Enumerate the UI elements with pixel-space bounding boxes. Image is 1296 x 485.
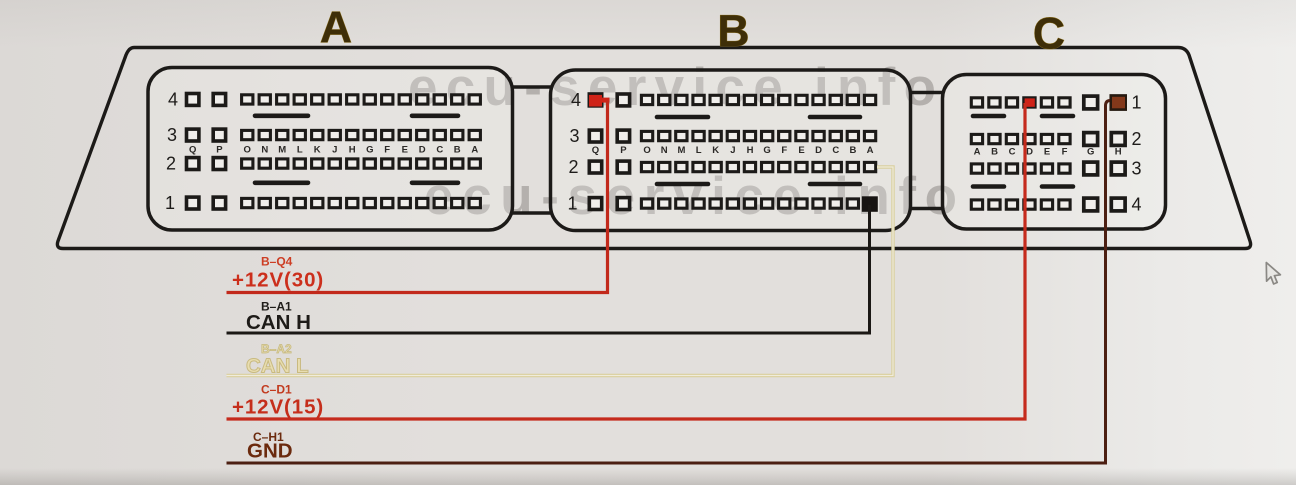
svg-text:B: B bbox=[849, 145, 856, 156]
svg-text:E: E bbox=[798, 145, 804, 156]
svg-text:B: B bbox=[991, 147, 998, 158]
svg-text:H: H bbox=[747, 145, 754, 156]
svg-text:C: C bbox=[1009, 147, 1016, 158]
svg-text:E: E bbox=[402, 145, 408, 156]
svg-text:J: J bbox=[332, 145, 337, 156]
svg-text:4: 4 bbox=[1131, 195, 1141, 215]
svg-text:N: N bbox=[661, 145, 668, 156]
svg-text:+12V(30): +12V(30) bbox=[232, 269, 324, 292]
svg-text:1: 1 bbox=[1131, 93, 1141, 113]
svg-text:3: 3 bbox=[167, 125, 177, 145]
svg-text:G: G bbox=[763, 145, 770, 156]
svg-text:+12V(15): +12V(15) bbox=[232, 396, 324, 419]
svg-text:L: L bbox=[297, 145, 303, 156]
svg-text:H: H bbox=[349, 145, 356, 156]
svg-text:GND: GND bbox=[247, 440, 293, 463]
svg-text:C: C bbox=[832, 145, 839, 156]
svg-text:H: H bbox=[1115, 147, 1122, 158]
svg-text:P: P bbox=[620, 145, 627, 156]
svg-text:M: M bbox=[278, 145, 286, 156]
svg-text:A: A bbox=[471, 145, 478, 156]
svg-text:1: 1 bbox=[567, 194, 577, 214]
svg-text:4: 4 bbox=[571, 90, 581, 110]
svg-text:B–Q4: B–Q4 bbox=[261, 255, 293, 269]
svg-text:C–D1: C–D1 bbox=[261, 383, 292, 397]
svg-text:F: F bbox=[781, 145, 787, 156]
svg-text:3: 3 bbox=[569, 126, 579, 146]
svg-text:Q: Q bbox=[189, 145, 196, 156]
svg-text:F: F bbox=[384, 145, 390, 156]
svg-text:2: 2 bbox=[1131, 129, 1141, 149]
svg-text:2: 2 bbox=[166, 154, 176, 174]
svg-text:B: B bbox=[454, 145, 461, 156]
svg-text:O: O bbox=[643, 145, 650, 156]
svg-text:A: A bbox=[974, 147, 981, 158]
svg-text:A: A bbox=[867, 145, 874, 156]
svg-text:D: D bbox=[1026, 147, 1033, 158]
svg-text:3: 3 bbox=[1131, 159, 1141, 179]
svg-text:K: K bbox=[712, 145, 719, 156]
svg-text:CAN L: CAN L bbox=[246, 355, 309, 378]
svg-text:P: P bbox=[216, 145, 223, 156]
svg-text:Q: Q bbox=[592, 145, 599, 156]
svg-text:G: G bbox=[366, 145, 373, 156]
svg-text:E: E bbox=[1044, 147, 1050, 158]
svg-text:M: M bbox=[677, 145, 685, 156]
svg-text:J: J bbox=[730, 145, 735, 156]
svg-text:F: F bbox=[1062, 147, 1068, 158]
svg-text:O: O bbox=[244, 145, 251, 156]
svg-text:C: C bbox=[1033, 10, 1065, 59]
svg-text:N: N bbox=[261, 145, 268, 156]
svg-text:B: B bbox=[717, 7, 749, 56]
svg-text:D: D bbox=[419, 145, 426, 156]
svg-text:CAN H: CAN H bbox=[246, 311, 311, 334]
svg-text:2: 2 bbox=[568, 157, 578, 177]
svg-text:1: 1 bbox=[165, 193, 175, 213]
svg-text:K: K bbox=[314, 145, 321, 156]
svg-text:L: L bbox=[696, 145, 702, 156]
svg-text:A: A bbox=[320, 4, 352, 53]
svg-text:4: 4 bbox=[168, 90, 178, 110]
svg-text:C: C bbox=[436, 145, 443, 156]
svg-text:D: D bbox=[815, 145, 822, 156]
svg-text:G: G bbox=[1087, 147, 1094, 158]
